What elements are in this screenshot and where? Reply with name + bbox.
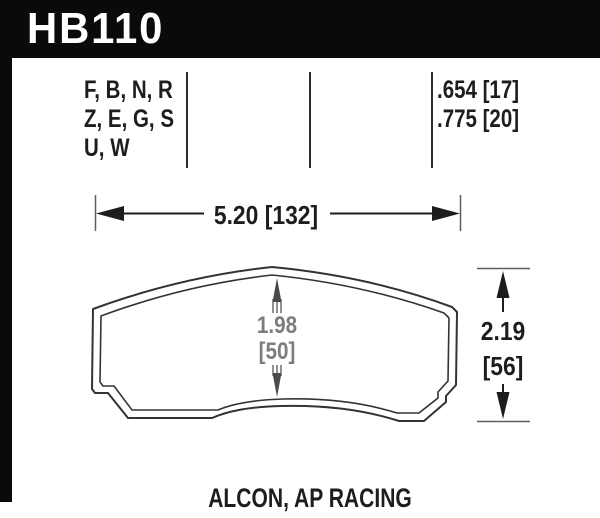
depth-arrowhead-down <box>273 373 282 397</box>
height-dim-arrowhead-down <box>497 392 510 419</box>
depth-dimension-label: 1.98 [50] <box>253 313 300 365</box>
depth-millimeters: [50] <box>257 339 297 365</box>
technical-drawing <box>0 0 600 518</box>
width-dim-arrowhead-right <box>432 206 460 221</box>
height-millimeters: [56] <box>481 349 526 384</box>
width-dimension-label: 5.20 [132] <box>211 200 321 231</box>
width-dim-arrowhead-left <box>96 206 124 221</box>
height-dimension-label: 2.19 [56] <box>479 314 527 384</box>
depth-inches: 1.98 <box>257 313 297 339</box>
brake-pad-spec-sheet: HB110 F, B, N, R Z, E, G, S U, W .654 [1… <box>0 0 600 518</box>
height-inches: 2.19 <box>481 314 526 349</box>
depth-arrowhead-up <box>273 278 282 302</box>
height-dim-arrowhead-up <box>497 271 510 298</box>
